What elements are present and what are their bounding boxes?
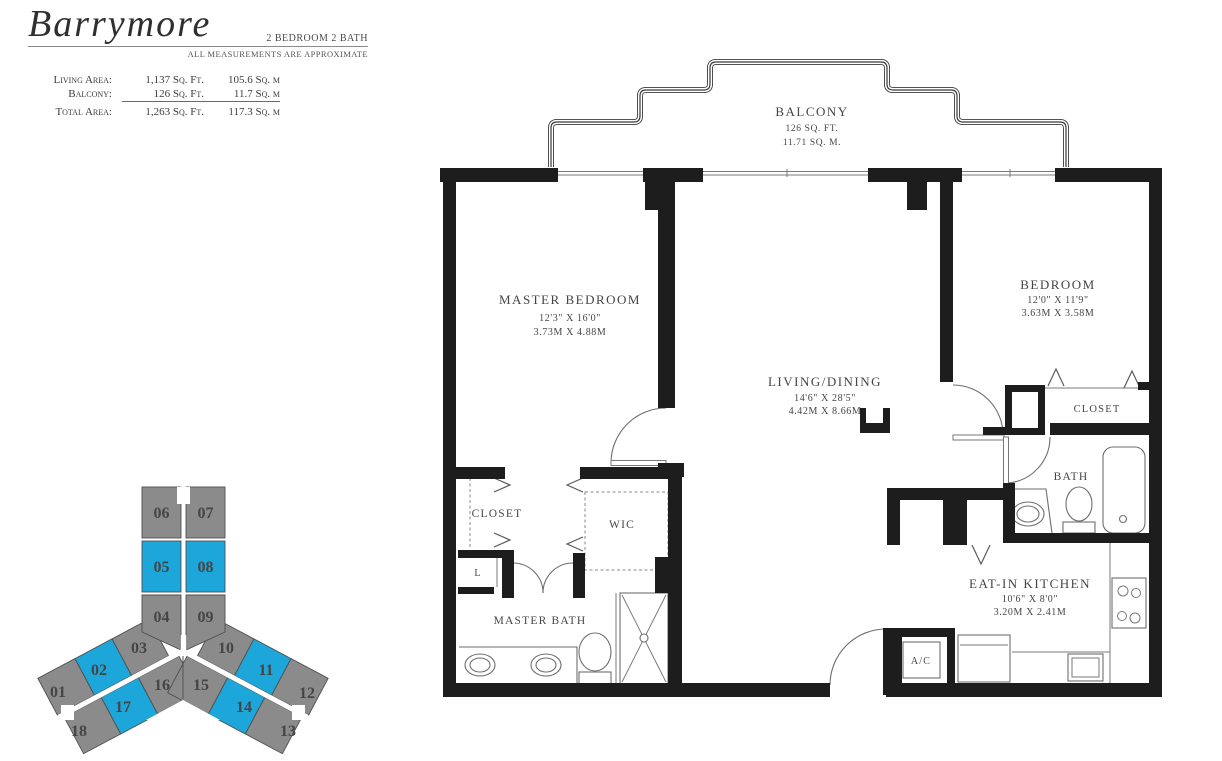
wall-top bbox=[440, 168, 558, 182]
sink-inner bbox=[470, 658, 490, 672]
plan-type: 2 BEDROOM 2 BATH bbox=[266, 33, 368, 44]
stat-sqft: 1,263 Sq. Ft. bbox=[122, 102, 204, 120]
stat-row-balcony: Balcony: 126 Sq. Ft. 11.7 Sq. m bbox=[28, 87, 280, 102]
wic-chevron-icon bbox=[567, 478, 583, 492]
sink-inner bbox=[536, 658, 556, 672]
keyplan-label-02: 02 bbox=[91, 662, 107, 679]
stat-sqft: 126 Sq. Ft. bbox=[122, 87, 204, 102]
kitchen-label: EAT-IN KITCHEN bbox=[969, 576, 1091, 591]
stat-sqft: 1,137 Sq. Ft. bbox=[122, 73, 204, 87]
pantry-bifold-icon bbox=[972, 545, 990, 564]
living-dining-dims-ft: 14'6" X 28'5" bbox=[794, 393, 856, 404]
master-bath-door-right-arc bbox=[543, 563, 573, 593]
bedroom-label: BEDROOM bbox=[1020, 277, 1096, 292]
bifold-door-icon bbox=[1048, 369, 1064, 386]
wall-bottom bbox=[886, 683, 1162, 697]
floor-plan: BALCONY 126 SQ. FT. 11.71 SQ. M. MASTER … bbox=[420, 45, 1180, 711]
stat-label: Living Area: bbox=[28, 73, 122, 87]
refrigerator-icon bbox=[958, 635, 1010, 682]
stat-sqm: 117.3 Sq. m bbox=[204, 102, 280, 120]
entry-door-arc bbox=[830, 629, 886, 685]
keyplan-label-15: 15 bbox=[193, 677, 209, 694]
master-bedroom-dims-m: 3.73M X 4.88M bbox=[534, 327, 607, 338]
master-closet-label: CLOSET bbox=[472, 508, 523, 520]
shower-drain-icon bbox=[640, 634, 648, 642]
master-bedroom-dims-ft: 12'3" X 16'0" bbox=[539, 313, 601, 324]
keyplan-label-03: 03 bbox=[131, 640, 147, 657]
wall-left-exterior bbox=[443, 168, 456, 697]
tub-drain-icon bbox=[1120, 516, 1127, 523]
stat-sqm: 105.6 Sq. m bbox=[204, 73, 280, 87]
keyplan-label-07: 07 bbox=[198, 505, 214, 522]
wall-living-bedroom bbox=[940, 168, 953, 382]
wic-chevron-icon bbox=[567, 537, 583, 551]
keyplan-label-18: 18 bbox=[71, 723, 87, 740]
header: Barrymore 2 BEDROOM 2 BATH ALL MEASUREME… bbox=[28, 6, 368, 119]
floorplan-sheet: Barrymore 2 BEDROOM 2 BATH ALL MEASUREME… bbox=[0, 0, 1222, 761]
wall-bottom bbox=[443, 683, 830, 697]
master-bath-fixtures bbox=[459, 593, 668, 685]
living-dining-dims-m: 4.42M X 8.66M bbox=[789, 406, 862, 417]
keyplan-label-01: 01 bbox=[50, 684, 66, 701]
stat-label: Total Area: bbox=[28, 102, 122, 120]
living-window bbox=[703, 169, 868, 177]
closet-chevron-icon bbox=[494, 533, 510, 547]
keyplan-label-14: 14 bbox=[236, 699, 252, 716]
keyplan-label-05: 05 bbox=[154, 559, 170, 576]
bifold-door-icon bbox=[1124, 371, 1140, 388]
wall-master-living bbox=[658, 168, 675, 408]
bedroom-dims-m: 3.63M X 3.58M bbox=[1022, 308, 1095, 319]
balcony-area-ft: 126 SQ. FT. bbox=[786, 124, 839, 134]
column-hole bbox=[866, 408, 883, 423]
keyplan-label-08: 08 bbox=[198, 559, 214, 576]
fixtures bbox=[459, 447, 1146, 685]
balcony-area-m: 11.71 SQ. M. bbox=[783, 138, 841, 148]
kitchen-dims-ft: 10'6" X 8'0" bbox=[1002, 594, 1058, 605]
keyplan-label-06: 06 bbox=[154, 505, 170, 522]
sink-inner bbox=[1017, 506, 1039, 522]
bath-door-leaf bbox=[1004, 437, 1009, 484]
wall-right-exterior bbox=[1149, 168, 1162, 697]
wic-label: WIC bbox=[609, 519, 635, 531]
disclaimer: ALL MEASUREMENTS ARE APPROXIMATE bbox=[28, 49, 368, 59]
keyplan-label-10: 10 bbox=[218, 640, 234, 657]
windows bbox=[558, 169, 1055, 177]
building-keyplan: 01 02 03 04 05 06 07 08 09 10 11 12 13 1… bbox=[25, 465, 340, 761]
master-bedroom-label: MASTER BEDROOM bbox=[499, 292, 641, 307]
bedroom-closet-chase bbox=[1009, 389, 1042, 432]
bedroom-door-leaf bbox=[953, 435, 1004, 440]
bath-label: BATH bbox=[1054, 471, 1089, 483]
shower bbox=[616, 593, 668, 684]
master-bedroom-door-leaf bbox=[611, 461, 666, 466]
keyplan-label-09: 09 bbox=[198, 609, 214, 626]
master-bath-label: MASTER BATH bbox=[494, 615, 587, 627]
linen-label: L bbox=[474, 568, 481, 579]
plan-name: Barrymore bbox=[28, 2, 211, 46]
stat-label: Balcony: bbox=[28, 87, 122, 102]
bedroom-dims-ft: 12'0" X 11'9" bbox=[1027, 295, 1088, 306]
stat-row-living: Living Area: 1,137 Sq. Ft. 105.6 Sq. m bbox=[28, 73, 280, 87]
balcony-label: BALCONY bbox=[775, 104, 848, 119]
toilet-icon bbox=[1066, 487, 1092, 521]
stat-sqm: 11.7 Sq. m bbox=[204, 87, 280, 102]
keyplan-label-17: 17 bbox=[115, 699, 131, 716]
kitchen-dims-m: 3.20M X 2.41M bbox=[994, 607, 1067, 618]
toilet-tank bbox=[1063, 522, 1095, 533]
ac-label: A/C bbox=[911, 656, 931, 667]
area-stats: Living Area: 1,137 Sq. Ft. 105.6 Sq. m B… bbox=[28, 73, 280, 119]
bedroom-window bbox=[962, 169, 1055, 177]
keyplan-label-11: 11 bbox=[258, 662, 273, 679]
stat-row-total: Total Area: 1,263 Sq. Ft. 117.3 Sq. m bbox=[28, 102, 280, 120]
toilet-icon bbox=[579, 633, 611, 671]
bedroom-closet-label: CLOSET bbox=[1074, 404, 1121, 415]
master-bedroom-door-arc bbox=[611, 408, 666, 463]
master-bedroom-window bbox=[558, 172, 643, 176]
keyplan-label-16: 16 bbox=[154, 677, 170, 694]
bath-fixtures bbox=[1008, 447, 1145, 533]
living-dining-label: LIVING/DINING bbox=[768, 374, 882, 389]
logo-row: Barrymore 2 BEDROOM 2 BATH bbox=[28, 6, 368, 47]
keyplan-label-04: 04 bbox=[154, 609, 170, 626]
bath-door-arc bbox=[1008, 437, 1050, 483]
stove-icon bbox=[1112, 578, 1146, 628]
keyplan-label-13: 13 bbox=[280, 723, 296, 740]
closet-chevron-icon bbox=[494, 478, 510, 492]
keyplan-label-12: 12 bbox=[299, 685, 315, 702]
master-bath-door-left-arc bbox=[513, 563, 543, 593]
